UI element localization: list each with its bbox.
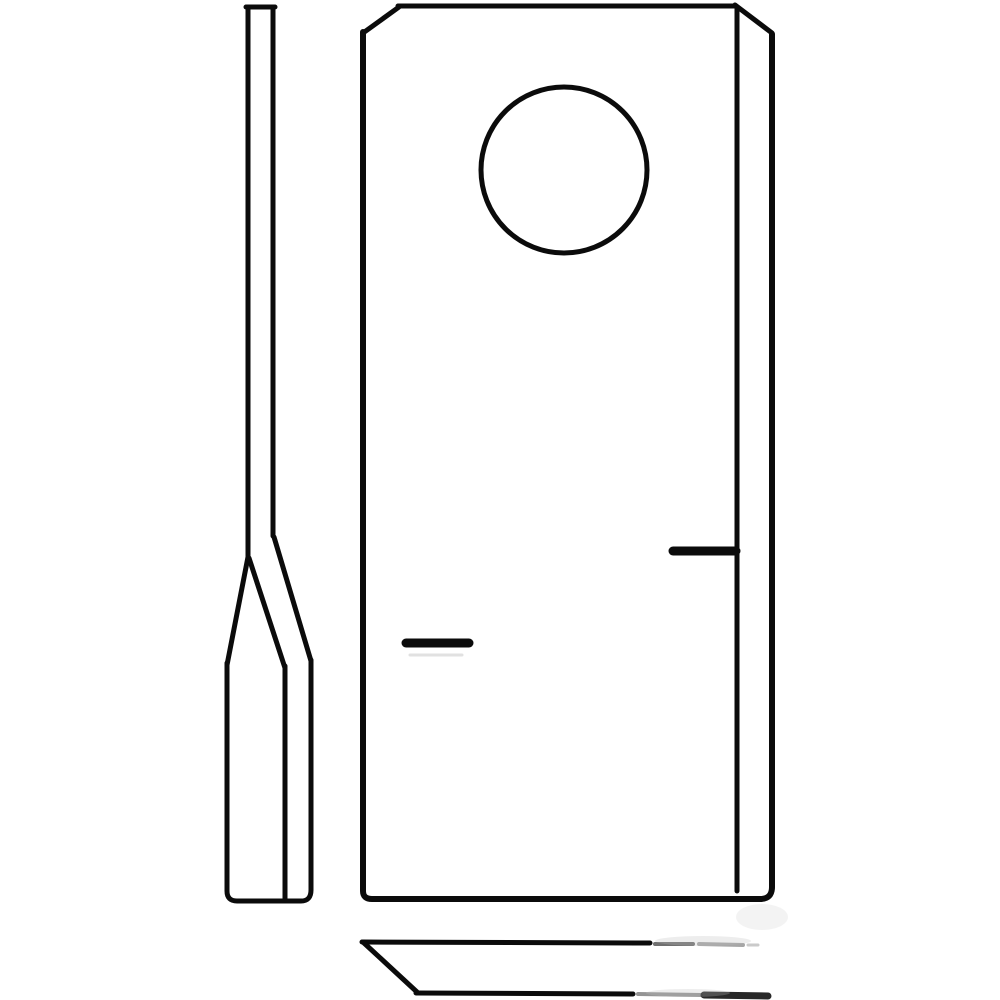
side-blade-body-outline	[227, 660, 311, 901]
mower-blade-technical-drawing	[0, 0, 1000, 1000]
plate-top-right-chamfer	[735, 5, 772, 33]
watermark-smudge-upper	[655, 936, 751, 946]
product-diagram-canvas	[0, 0, 1000, 1000]
bottom-view-bottom-edge	[416, 993, 633, 994]
bottom-view-top-edge	[362, 942, 650, 943]
plate-top-left-chamfer	[363, 7, 399, 33]
side-taper-left-edge	[227, 557, 248, 665]
watermark-smudge-corner	[736, 904, 788, 930]
bottom-view-left-diagonal	[364, 943, 417, 992]
plate-left-bottom-right-outline	[363, 32, 772, 899]
side-taper-bevel-line	[249, 558, 285, 668]
watermark-smudge-lower	[646, 989, 730, 997]
bolt-hole	[481, 87, 647, 253]
side-taper-right-edge	[274, 537, 311, 661]
